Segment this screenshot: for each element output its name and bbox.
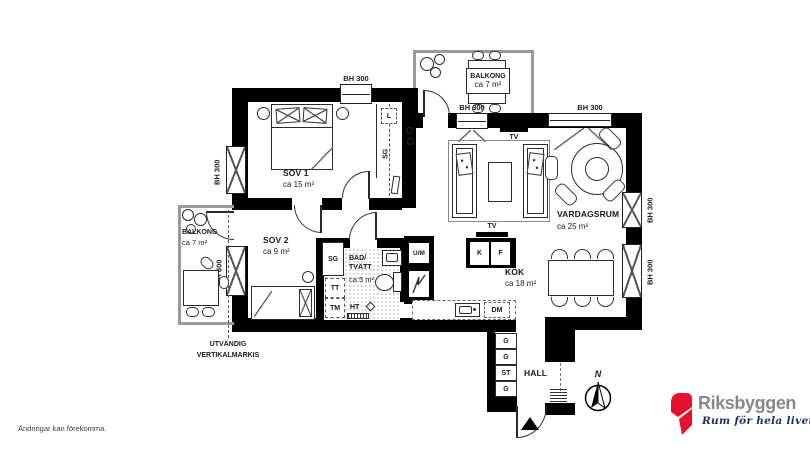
utility-label: U/M (413, 250, 425, 257)
room-area: ca 7 m² (475, 80, 502, 89)
stair-hatch (550, 389, 567, 403)
wall-hook (406, 127, 413, 134)
wall (377, 238, 404, 248)
entrance-door-leaf (516, 406, 518, 438)
armchair (553, 181, 579, 207)
pillow (299, 289, 312, 317)
awning-label: VERTIKALMARKIS (168, 351, 288, 360)
toilet-bowl (375, 274, 394, 291)
plant-icon (182, 209, 194, 221)
disclaimer-text: Ändringar kan förekomma. (18, 425, 106, 433)
wall (232, 88, 418, 102)
dining-chair (574, 297, 591, 307)
bed-sheet-line (271, 127, 333, 128)
wall (487, 332, 495, 398)
utility-closet: U/M (409, 243, 429, 263)
freezer: F (491, 242, 510, 265)
room-label: KÖK (505, 268, 524, 277)
brand-name: Riksbyggen (698, 394, 796, 413)
floor-plan-page: BALKONG ca 7 m² BH 300 BH 800 BH 300 BH … (0, 0, 810, 455)
blanket-fold (311, 147, 333, 170)
sofa-cushion (527, 152, 545, 176)
balcony-chair (489, 51, 501, 60)
closet-label: G (503, 354, 508, 361)
window-indicator-line (554, 128, 584, 150)
stool (302, 271, 314, 283)
balcony-table (183, 270, 219, 306)
dishwasher: DM (484, 302, 510, 318)
closet-label: G (503, 338, 508, 345)
stairwell-door-line (560, 363, 561, 391)
window (456, 113, 488, 129)
toilet-tank (393, 272, 402, 292)
closet-label: SG (379, 140, 393, 168)
balcony-chair (186, 307, 199, 317)
wall (248, 198, 292, 210)
sink-basin (459, 306, 472, 314)
pillow (276, 107, 301, 124)
closet-label: ST (502, 370, 511, 377)
bedroom2-door-leaf (320, 205, 322, 233)
wall (545, 403, 575, 415)
room-label: VARDAGSRUM (557, 210, 619, 219)
dining-chair (551, 297, 568, 307)
window (226, 146, 246, 194)
room-label: BAD/ (349, 255, 366, 262)
room-label: SOV 2 (263, 236, 289, 245)
bedroom2-door-arc (294, 205, 322, 233)
window-height-label: BH 300 (566, 103, 614, 112)
dining-chair (551, 249, 568, 259)
coffee-table (488, 162, 512, 202)
plant-icon (430, 67, 441, 78)
tv-label: TV (484, 223, 500, 231)
wall (487, 396, 517, 412)
appliance-label: TT (331, 285, 340, 292)
dining-chair (597, 297, 614, 307)
room-area: ca 7 m² (182, 239, 207, 247)
closet-label: SG (328, 256, 338, 263)
towel-dryer-label: HT (350, 304, 359, 311)
dining-table (548, 260, 614, 296)
closet-front-line (376, 104, 377, 178)
dining-chair (574, 249, 591, 259)
balcony-chair (472, 51, 484, 60)
dining-chair (597, 249, 614, 259)
window-height-label: BH 300 (644, 190, 657, 230)
wall (322, 198, 342, 210)
compass: N (578, 370, 618, 416)
wall (402, 102, 416, 208)
window-height-label: BH 300 (332, 74, 380, 83)
room-area: ca 18 m² (505, 280, 536, 288)
bathroom-door-arc (349, 212, 377, 240)
room-label: BALKONG (182, 229, 217, 236)
room-area: ca 15 m² (283, 181, 314, 189)
window (622, 244, 642, 298)
appliance-label: TM (330, 305, 340, 312)
electrical-cabinet (409, 271, 429, 297)
room-label: TVÄTT (349, 264, 372, 271)
room-label: SOV 1 (283, 169, 309, 178)
tv-shelf (476, 232, 508, 237)
nightstand (336, 107, 349, 120)
awning-line (228, 210, 229, 338)
closet-label: L (387, 113, 391, 120)
wall-hook (407, 138, 414, 145)
awning-label: UTVÄNDIG (168, 340, 288, 349)
fridge: K (470, 242, 489, 265)
freezer-label: F (498, 250, 502, 257)
balcony-chair (202, 307, 215, 317)
compass-rose-icon (578, 380, 618, 416)
armchair (545, 156, 558, 180)
wall (232, 318, 516, 332)
bedroom1-door-arc (342, 171, 369, 198)
hall-closet: ST (495, 365, 517, 381)
zigzag-icon (409, 271, 429, 297)
window-height-label: BH 300 (644, 250, 657, 294)
room-area: ca 25 m² (557, 223, 588, 231)
plant-icon (194, 213, 207, 226)
towel-dryer (347, 313, 369, 319)
hall-closet: G (495, 333, 517, 349)
balcony-door-leaf (423, 90, 425, 117)
nightstand (257, 107, 270, 120)
window (340, 84, 372, 104)
linen-closet: L (381, 108, 397, 124)
brand-tagline: Rum för hela livet (702, 416, 810, 427)
round-table-center (585, 157, 609, 181)
faucet-dot (473, 308, 476, 311)
sofa-cushion (456, 152, 474, 176)
room-label: HALL (524, 369, 547, 378)
bedroom1-door-leaf (368, 171, 370, 199)
wall (369, 198, 402, 210)
closet-label: G (503, 386, 508, 393)
brand-block: Riksbyggen Rum för hela livet (664, 388, 804, 442)
window (622, 192, 642, 228)
sink-basin (386, 253, 398, 262)
dryer: TT (325, 278, 345, 298)
compass-north-label: N (590, 370, 606, 380)
wall (545, 317, 642, 330)
room-label: BALKONG (470, 73, 505, 80)
pillow (303, 107, 328, 124)
closet-door-ajar (391, 176, 401, 195)
washing-machine: TM (325, 298, 345, 318)
fridge-label: K (477, 250, 482, 257)
tv-wall-mount (500, 126, 528, 132)
window-height-label: BH 300 (448, 103, 496, 112)
room-area: ca 5 m² (349, 276, 374, 284)
entrance-marker-icon (521, 417, 539, 430)
hall-closet: SG (322, 242, 344, 276)
window (548, 113, 612, 127)
hall-closet: G (495, 349, 517, 365)
window-height-label: BH 300 (211, 150, 224, 194)
hall-closet: G (495, 381, 517, 397)
wall (545, 330, 575, 362)
riksbyggen-logo-icon (668, 391, 694, 439)
balcony-top-label-box: BALKONG ca 7 m² (466, 68, 510, 94)
dishwasher-label: DM (492, 307, 503, 314)
plant-icon (434, 54, 445, 65)
blanket-fold (254, 291, 272, 317)
bathroom-door-leaf (375, 212, 377, 240)
room-area: ca 9 m² (263, 248, 290, 256)
